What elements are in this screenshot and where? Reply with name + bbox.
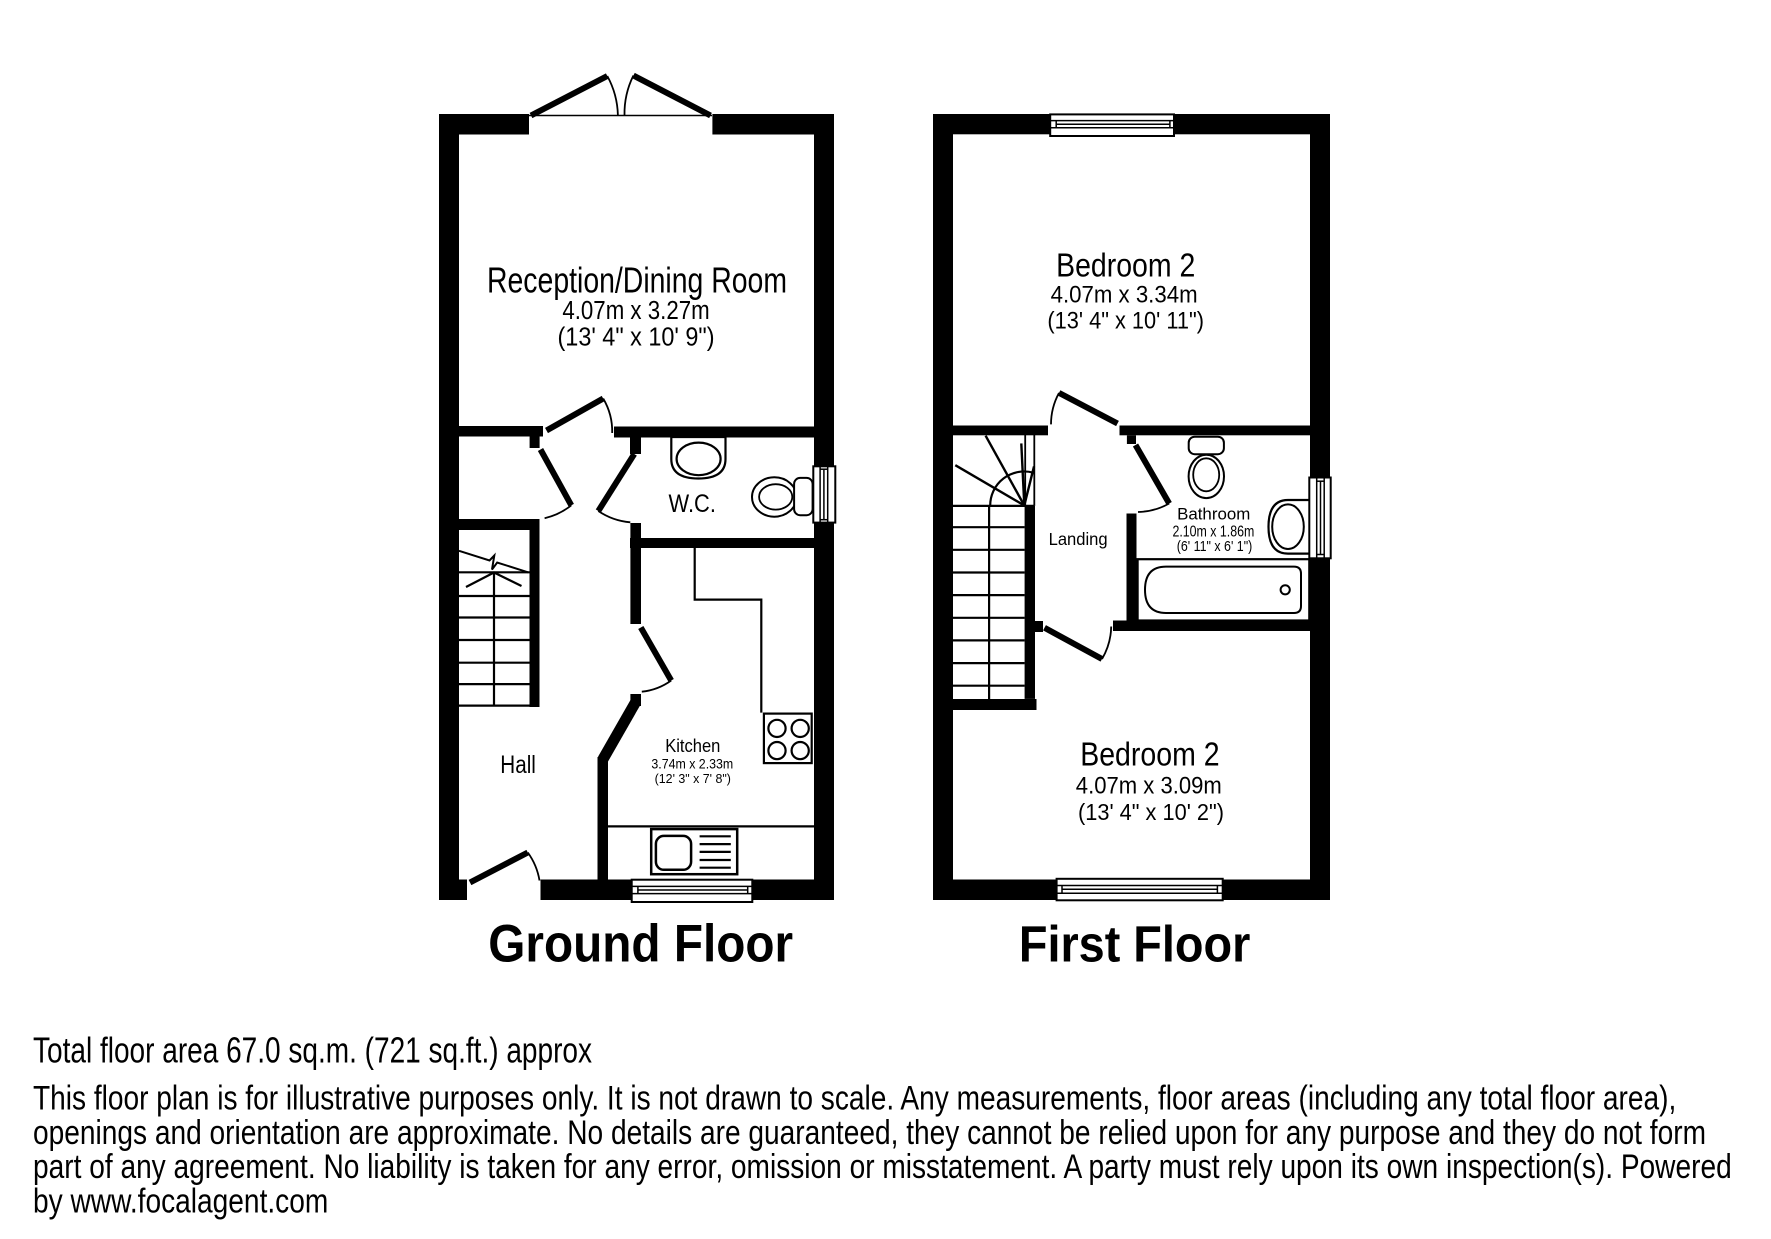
- svg-text:(12' 3" x 7' 8"): (12' 3" x 7' 8"): [655, 771, 731, 786]
- svg-text:Ground Floor: Ground Floor: [488, 915, 793, 974]
- svg-text:This floor plan is for illustr: This floor plan is for illustrative purp…: [33, 1080, 1676, 1118]
- svg-text:Bathroom: Bathroom: [1177, 505, 1250, 523]
- svg-text:(13' 4" x 10' 9"): (13' 4" x 10' 9"): [558, 321, 715, 351]
- svg-text:(6' 11" x 6' 1"): (6' 11" x 6' 1"): [1177, 539, 1253, 555]
- svg-text:part of any agreement. No liab: part of any agreement. No liability is t…: [33, 1148, 1732, 1186]
- svg-text:openings and orientation are a: openings and orientation are approximate…: [33, 1114, 1706, 1152]
- svg-text:2.10m x 1.86m: 2.10m x 1.86m: [1172, 523, 1254, 540]
- svg-text:(13' 4" x 10' 11"): (13' 4" x 10' 11"): [1047, 308, 1204, 335]
- svg-text:by www.focalagent.com: by www.focalagent.com: [33, 1182, 328, 1220]
- svg-text:4.07m x 3.09m: 4.07m x 3.09m: [1076, 772, 1222, 799]
- svg-text:(13' 4" x 10' 2"): (13' 4" x 10' 2"): [1078, 799, 1224, 825]
- svg-text:Landing: Landing: [1049, 529, 1108, 549]
- svg-text:3.74m x 2.33m: 3.74m x 2.33m: [651, 757, 733, 772]
- svg-text:4.07m x 3.27m: 4.07m x 3.27m: [562, 295, 709, 325]
- svg-text:Kitchen: Kitchen: [665, 736, 720, 756]
- svg-text:Hall: Hall: [500, 751, 536, 779]
- svg-text:W.C.: W.C.: [669, 490, 716, 518]
- svg-text:Total floor area 67.0 sq.m. (7: Total floor area 67.0 sq.m. (721 sq.ft.)…: [33, 1030, 592, 1071]
- svg-text:Bedroom 2: Bedroom 2: [1056, 247, 1195, 284]
- svg-text:4.07m x 3.34m: 4.07m x 3.34m: [1051, 282, 1198, 309]
- svg-text:Bedroom 2: Bedroom 2: [1080, 736, 1219, 773]
- svg-text:First Floor: First Floor: [1019, 916, 1251, 973]
